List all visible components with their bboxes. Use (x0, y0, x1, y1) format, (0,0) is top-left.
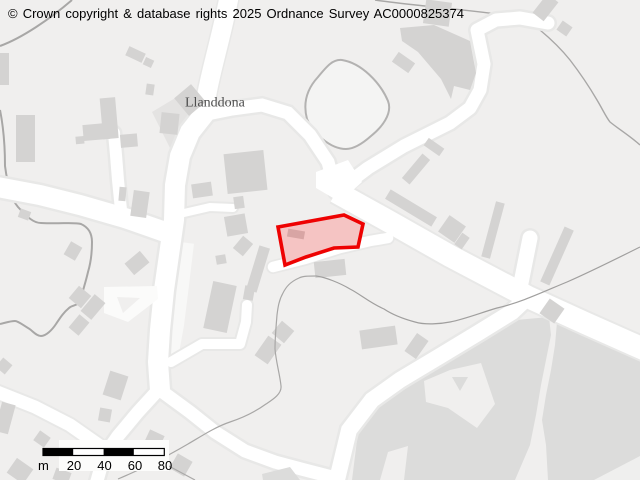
svg-text:Llanddona: Llanddona (185, 96, 246, 111)
svg-text:40: 40 (97, 458, 111, 473)
svg-text:© Crown copyright & database r: © Crown copyright & database rights 2025… (8, 6, 464, 21)
svg-text:80: 80 (158, 458, 172, 473)
svg-text:60: 60 (128, 458, 142, 473)
svg-text:20: 20 (67, 458, 81, 473)
svg-text:m: m (38, 458, 49, 473)
